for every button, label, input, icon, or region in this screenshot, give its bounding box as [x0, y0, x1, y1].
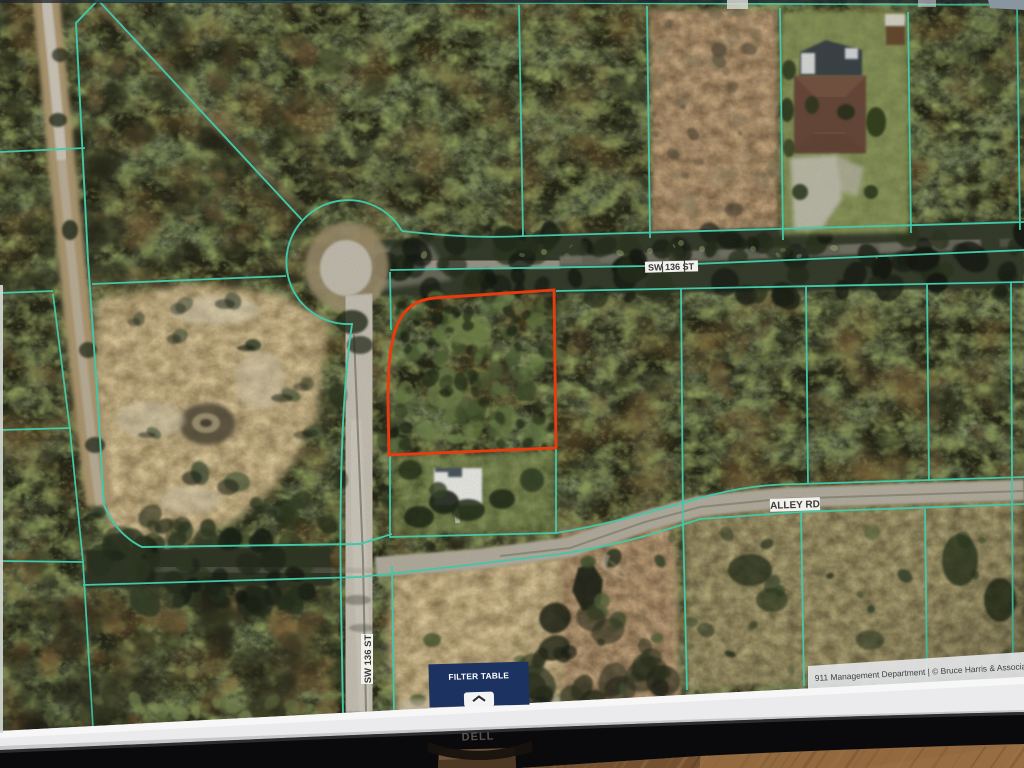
svg-text:DELL: DELL	[462, 730, 495, 743]
svg-text:ALLEY RD: ALLEY RD	[770, 499, 820, 512]
svg-text:FILTER TABLE: FILTER TABLE	[448, 670, 509, 682]
svg-text:SW 136 ST: SW 136 ST	[648, 261, 695, 272]
svg-text:SW 136 ST: SW 136 ST	[363, 635, 374, 684]
